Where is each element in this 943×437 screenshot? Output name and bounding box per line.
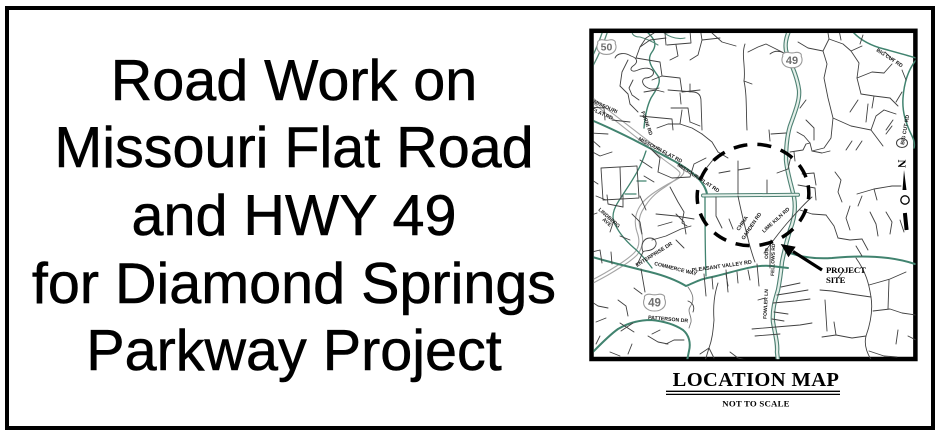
svg-text:50: 50 — [601, 42, 613, 54]
svg-text:NOT TO SCALE: NOT TO SCALE — [722, 399, 789, 409]
svg-text:SITE: SITE — [826, 275, 846, 285]
svg-text:49: 49 — [648, 298, 661, 310]
svg-text:FELLOWS RD: FELLOWS RD — [770, 243, 777, 276]
svg-text:N: N — [895, 160, 907, 169]
svg-text:49: 49 — [786, 55, 798, 67]
svg-text:ODD: ODD — [764, 248, 770, 260]
svg-text:PROJECT: PROJECT — [826, 265, 866, 275]
svg-text:LOCATION MAP: LOCATION MAP — [673, 369, 840, 391]
